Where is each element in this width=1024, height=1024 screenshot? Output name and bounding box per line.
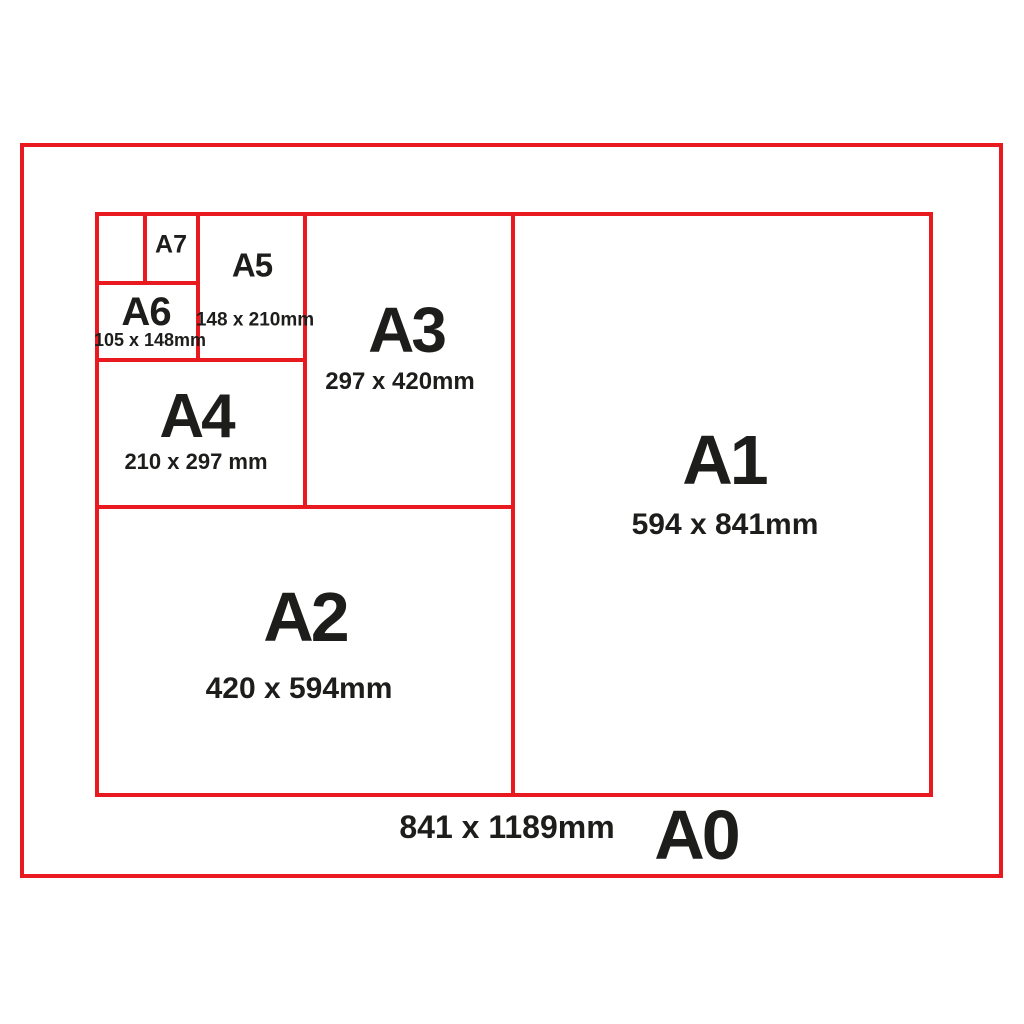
divider-a6-top	[95, 281, 200, 285]
a1-dimensions: 594 x 841mm	[632, 510, 819, 540]
a5-dimensions: 148 x 210mm	[196, 311, 314, 330]
a1-label: A1	[682, 425, 765, 495]
a6-dimensions: 105 x 148mm	[94, 331, 206, 349]
a7-label: A7	[155, 233, 187, 258]
a0-dimensions: 841 x 1189mm	[399, 811, 614, 843]
a3-dimensions: 297 x 420mm	[325, 370, 474, 394]
a2-label: A2	[263, 582, 346, 652]
divider-a4-top	[95, 358, 307, 362]
a5-label: A5	[232, 249, 272, 282]
paper-sizes-diagram: A7 A6 105 x 148mm A5 148 x 210mm A4 210 …	[0, 0, 1024, 1024]
a4-label: A4	[159, 386, 232, 448]
a3-label: A3	[368, 298, 444, 362]
a6-label: A6	[121, 292, 170, 332]
a0-label: A0	[654, 800, 737, 870]
a4-dimensions: 210 x 297 mm	[124, 451, 267, 473]
divider-a7-left	[143, 212, 147, 285]
a2-dimensions: 420 x 594mm	[206, 674, 393, 704]
